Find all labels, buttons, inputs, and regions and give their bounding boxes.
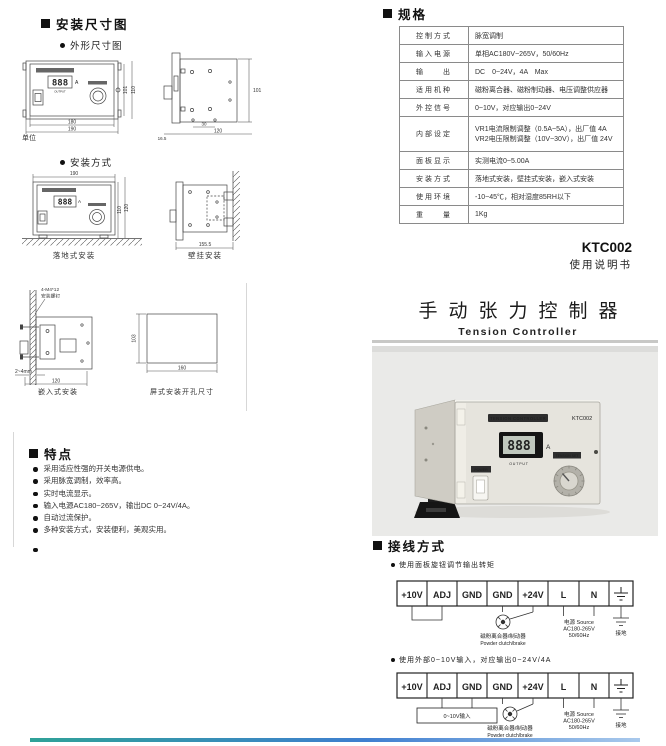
ground-symbol-icon — [613, 710, 629, 718]
dim-103: 103 — [132, 334, 138, 343]
bullet-icon — [33, 528, 38, 533]
spec-value: 实测电流0~5.00A — [469, 152, 624, 170]
section-marker-icon — [373, 541, 382, 550]
clutch-label-en: Powder clutch/brake — [480, 641, 526, 647]
feature-item — [33, 544, 313, 553]
table-row: 控制方式脉宽调制 — [400, 27, 624, 45]
wiring-note-2-text: 使用外部0~10V输入，对应输出0~24V/4A — [399, 655, 551, 665]
photo-display-value: 888 — [507, 439, 531, 454]
bullet-icon — [60, 43, 65, 48]
product-photo: TENSION CONTROLLER KTC002 888 A OUTPUT P… — [372, 346, 658, 536]
manual-label: 使用说明书 — [432, 257, 632, 272]
bullet-icon — [33, 492, 38, 497]
feature-item: 自动过流保护。 — [33, 512, 313, 524]
table-row: 重 量1Kg — [400, 206, 624, 224]
bullet-icon — [391, 563, 395, 567]
knob-link-wire — [412, 606, 442, 620]
bullet-icon — [33, 504, 38, 509]
cutout-view: 103 160 屏式安装开孔尺寸 — [132, 314, 218, 396]
section-marker-icon — [29, 449, 38, 458]
source-label-2: AC180-265V — [563, 719, 595, 725]
feature-text: 采用适应性强的开关电源供电。 — [44, 463, 149, 475]
terminal-24v: +24V — [522, 682, 543, 692]
method-subheader: 安装方式 — [60, 155, 112, 169]
section-marker-icon — [383, 9, 392, 18]
method-title: 安装方式 — [70, 155, 112, 169]
table-row: 输入电源单相AC180V~265V，50/60Hz — [400, 45, 624, 63]
floor-amp-label: A — [78, 199, 81, 204]
footer-accent-bar — [30, 738, 640, 742]
install-section-header: 安装尺寸图 — [41, 14, 129, 33]
model-number: KTC002 — [432, 240, 632, 255]
source-label-3: 50/60Hz — [569, 633, 590, 639]
feature-text: 多种安装方式，安装便利，美观实用。 — [44, 524, 172, 536]
model-block: KTC002 使用说明书 — [432, 240, 632, 272]
clutch-label-cn: 磁粉离合器/制动器 — [480, 632, 526, 640]
wall-mount-label: 壁挂安装 — [188, 250, 222, 260]
photo-amp-label: A — [546, 444, 551, 451]
feature-item: 采用脉宽调制，效率高。 — [33, 475, 313, 487]
wiring-note-1: 使用面板旋钮调节输出转矩 — [391, 560, 495, 570]
terminal-gnd2: GND — [493, 590, 514, 600]
bullet-icon — [33, 467, 38, 472]
feature-text: 输入电源AC180~265V，输出DC 0~24V/4A。 — [44, 500, 195, 512]
ground-label: 接地 — [615, 629, 627, 637]
spec-value: 落地式安装，壁挂式安装，嵌入式安装 — [469, 170, 624, 188]
ground-label: 接地 — [615, 721, 627, 729]
spec-label: 内部设定 — [400, 117, 469, 152]
wiring-diagram-panel-knob: +10V ADJ GND GND +24V L N 磁粉离合器/制动器 Pow — [393, 578, 637, 652]
dim-190: 190 — [68, 127, 77, 133]
terminal-n: N — [591, 682, 598, 692]
spec-value-line1: VR1电流限制调整（0.5A~5A），出厂值 4A — [475, 124, 617, 134]
photo-brand-label: TENSION CONTROLLER — [490, 416, 546, 421]
wiring-annotations — [412, 606, 629, 629]
photo-output-label: OUTPUT — [509, 462, 529, 466]
terminal-strip: +10V ADJ GND GND +24V L N — [397, 673, 633, 698]
table-row: 面板显示实测电流0~5.00A — [400, 152, 624, 170]
spec-value: 单相AC180V~265V，50/60Hz — [469, 45, 624, 63]
feature-text: 自动过流保护。 — [44, 512, 97, 524]
floor-display-value: 888 — [58, 198, 73, 207]
embed-gap: 2~4mm — [15, 369, 32, 375]
divider-line — [13, 432, 14, 547]
feature-item: 采用适应性强的开关电源供电。 — [33, 463, 313, 475]
install-section-title: 安装尺寸图 — [56, 14, 129, 33]
earth-terminal-icon — [614, 587, 628, 600]
dim-120-floor: 120 — [124, 204, 130, 213]
spec-label: 重 量 — [400, 206, 469, 224]
spec-value-line2: VR2电压限制调整（10V~30V），出厂值 24V — [475, 134, 617, 144]
terminal-24v: +24V — [522, 590, 543, 600]
features-header: 特点 — [29, 444, 73, 463]
spec-label: 输入电源 — [400, 45, 469, 63]
dim-30: 30 — [201, 122, 207, 127]
terminal-strip: +10V ADJ GND GND +24V L N — [397, 581, 633, 606]
dim-120-side: 120 — [214, 129, 223, 135]
source-label-1: 电源 Source — [564, 618, 594, 626]
dim-155-5: 155.5 — [199, 242, 212, 248]
terminal-adj: ADJ — [433, 682, 451, 692]
spec-label: 安装方式 — [400, 170, 469, 188]
tension-knob — [554, 466, 585, 497]
dim-101-front: 101 — [123, 86, 129, 95]
terminal-l: L — [561, 590, 567, 600]
divider-line — [246, 283, 247, 411]
bullet-icon — [33, 479, 38, 484]
specs-title: 规格 — [398, 4, 427, 23]
wiring-note-2: 使用外部0~10V输入，对应输出0~24V/4A — [391, 655, 551, 665]
page-title: 手动张力控制器 Tension Controller — [380, 296, 656, 338]
embed-screw-note-2: 安装螺钉 — [41, 293, 60, 300]
embed-screw-note-1: 4-M4*12 — [41, 287, 59, 293]
dim-120-embed: 120 — [52, 379, 61, 385]
terminal-gnd1: GND — [462, 682, 483, 692]
spec-value: 0~10V，对应输出0~24V — [469, 99, 624, 117]
photo-model-label: KTC002 — [572, 416, 592, 422]
feature-item: 多种安装方式，安装便利，美观实用。 — [33, 524, 313, 536]
spec-value: 磁粉离合器、磁粉制动器、电压调整供应器 — [469, 81, 624, 99]
embedded-mount-view: 4-M4*12 安装螺钉 2~4mm 120 嵌入式安装 — [15, 287, 92, 396]
spec-value: 脉宽调制 — [469, 27, 624, 45]
cutout-label: 屏式安装开孔尺寸 — [150, 387, 214, 396]
embedded-mount-drawing: 4-M4*12 安装螺钉 2~4mm 120 嵌入式安装 103 160 屏式安… — [12, 283, 322, 397]
photo-power-label: POWER — [474, 468, 488, 472]
wall-mount-view: 155.5 壁挂安装 — [170, 171, 240, 260]
bullet-icon — [33, 548, 38, 553]
table-row: 适用机种磁粉离合器、磁粉制动器、电压调整供应器 — [400, 81, 624, 99]
dim-16-5: 16.5 — [158, 136, 167, 141]
earth-terminal-icon — [614, 679, 628, 692]
dim-160: 160 — [178, 366, 187, 372]
ground-symbol-icon — [613, 618, 629, 626]
bullet-icon — [391, 658, 395, 662]
terminal-n: N — [591, 590, 598, 600]
terminal-10v: +10V — [401, 682, 422, 692]
table-row: 输 出DC 0~24V，4A Max — [400, 63, 624, 81]
table-row: 内部设定VR1电流限制调整（0.5A~5A），出厂值 4AVR2电压限制调整（1… — [400, 117, 624, 152]
title-chinese: 手动张力控制器 — [380, 296, 666, 323]
table-row: 外控信号0~10V，对应输出0~24V — [400, 99, 624, 117]
specs-header: 规格 — [383, 4, 427, 23]
features-title: 特点 — [44, 444, 73, 463]
feature-text: 实时电流显示。 — [44, 488, 97, 500]
features-list: 采用适应性强的开关电源供电。 采用脉宽调制，效率高。 实时电流显示。 输入电源A… — [33, 463, 313, 552]
title-english: Tension Controller — [380, 326, 656, 338]
bullet-icon — [33, 516, 38, 521]
wiring-diagram-external-input: +10V ADJ GND GND +24V L N 0~10V输入 — [393, 670, 637, 746]
photo-top-strip — [372, 340, 658, 343]
dim-180: 180 — [68, 120, 77, 126]
wiring-header: 接线方式 — [373, 536, 446, 555]
outline-dimension-drawing: 888 A OUTPUT 180 190 101 110 单位 — [12, 50, 282, 154]
terminal-l: L — [561, 682, 567, 692]
table-row: 安装方式落地式安装，壁挂式安装，嵌入式安装 — [400, 170, 624, 188]
controller-illustration: TENSION CONTROLLER KTC002 888 A OUTPUT P… — [372, 352, 658, 530]
terminal-10v: +10V — [401, 590, 422, 600]
spec-label: 外控信号 — [400, 99, 469, 117]
dim-101-side: 101 — [253, 88, 262, 94]
spec-value: DC 0~24V，4A Max — [469, 63, 624, 81]
source-label-2: AC180-265V — [563, 627, 595, 633]
spec-label: 面板显示 — [400, 152, 469, 170]
manual-page: 安装尺寸图 外形尺寸图 888 A OUTPUT 180 190 — [0, 0, 666, 746]
terminal-gnd2: GND — [493, 682, 514, 692]
table-row: 使用环境-10~45℃，相对湿度85RH以下 — [400, 188, 624, 206]
clutch-label-cn: 磁粉离合器/制动器 — [487, 724, 533, 732]
spec-label: 适用机种 — [400, 81, 469, 99]
source-label-1: 电源 Source — [564, 710, 594, 718]
embed-mount-label: 嵌入式安装 — [38, 387, 78, 396]
front-output-label: OUTPUT — [54, 90, 66, 94]
wiring-note-1-text: 使用面板旋钮调节输出转矩 — [399, 560, 495, 570]
dim-110-front: 110 — [131, 86, 137, 94]
outline-side-view: 101 30 120 16.5 — [158, 53, 262, 141]
floor-mount-label: 落地式安装 — [53, 250, 96, 260]
section-marker-icon — [41, 19, 50, 28]
terminal-adj: ADJ — [433, 590, 451, 600]
wiring-title: 接线方式 — [388, 536, 446, 555]
feature-item: 实时电流显示。 — [33, 488, 313, 500]
feature-text: 采用脉宽调制，效率高。 — [44, 475, 127, 487]
feature-item: 输入电源AC180~265V，输出DC 0~24V/4A。 — [33, 500, 313, 512]
spec-label: 控制方式 — [400, 27, 469, 45]
spec-label: 输 出 — [400, 63, 469, 81]
front-amp-label: A — [75, 80, 79, 86]
bullet-icon — [60, 160, 65, 165]
terminal-gnd1: GND — [462, 590, 483, 600]
spec-value: 1Kg — [469, 206, 624, 224]
spec-value: -10~45℃，相对湿度85RH以下 — [469, 188, 624, 206]
photo-tension-set-label: TENSION SET — [556, 454, 580, 458]
specs-table: 控制方式脉宽调制 输入电源单相AC180V~265V，50/60Hz 输 出DC… — [399, 26, 624, 224]
mounting-methods-drawing: 190 888 A 110 120 落地式安装 — [12, 170, 322, 260]
spec-value: VR1电流限制调整（0.5A~5A），出厂值 4AVR2电压限制调整（10V~3… — [469, 117, 624, 152]
dim-190-floor: 190 — [70, 171, 79, 177]
unit-label: 单位 — [22, 133, 36, 142]
spec-label: 使用环境 — [400, 188, 469, 206]
external-input-label: 0~10V输入 — [443, 712, 471, 720]
floor-mount-view: 190 888 A 110 120 落地式安装 — [22, 171, 142, 260]
outline-front-view: 888 A OUTPUT 180 190 101 110 单位 — [22, 61, 137, 142]
source-label-3: 50/60Hz — [569, 725, 590, 731]
front-display-value: 888 — [52, 79, 68, 89]
dim-110-floor: 110 — [117, 206, 123, 214]
